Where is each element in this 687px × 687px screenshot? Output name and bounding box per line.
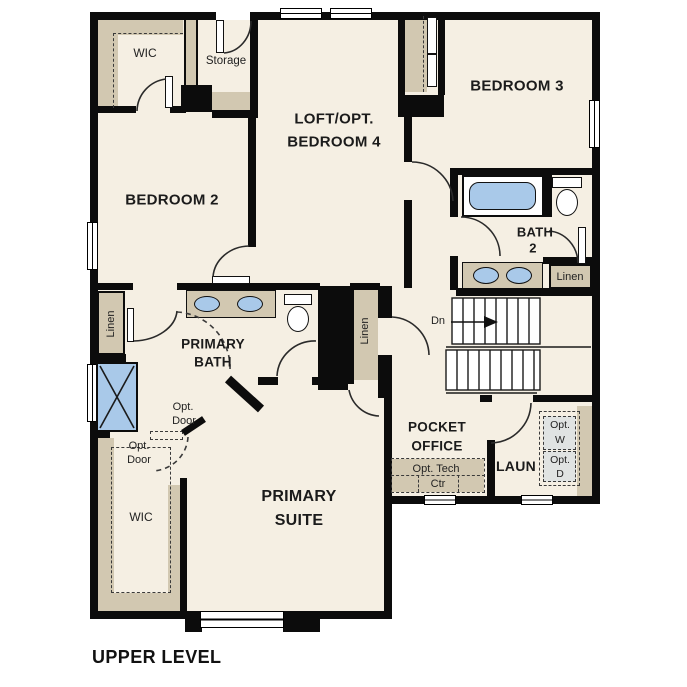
storage-door-leaf: [216, 20, 224, 53]
label-opt-tech-line1: Opt. Tech: [413, 463, 460, 475]
wic-storage-divider-closet: [184, 12, 198, 85]
wall-storage-east: [250, 12, 258, 118]
wall-loft-south-cap: [350, 283, 380, 290]
toilet-bath2-bowl: [556, 189, 578, 216]
wall-block-storage-sw: [181, 85, 212, 112]
wall-exterior-left: [90, 12, 98, 619]
upper-wic-shelf-dashed: [113, 33, 183, 108]
label-linen-hall: Linen: [105, 311, 117, 338]
label-laundry: LAUN: [496, 458, 536, 474]
wall-center-east-b: [378, 355, 392, 398]
wall-center-chase: [318, 286, 354, 384]
wall-hall-south-b: [533, 395, 592, 402]
label-storage: Storage: [206, 55, 246, 67]
wall-br3-closet-east: [438, 12, 445, 95]
sink-primary-1: [194, 296, 220, 312]
toilet-primary-tank: [284, 294, 312, 305]
label-opt-door2-line2: Door: [127, 454, 151, 466]
label-loft-line2: BEDROOM 4: [287, 134, 381, 151]
primary-bath-door-opening: [133, 283, 177, 290]
label-primary-suite-line1: PRIMARY: [261, 488, 336, 506]
label-primary-suite-line2: SUITE: [275, 512, 324, 530]
wall-br2-east: [248, 112, 256, 247]
wall-loft-east-b: [404, 200, 412, 288]
wall-center-east-a: [378, 286, 392, 318]
label-bath2-line1: BATH: [517, 225, 553, 240]
wall-bath2-north: [450, 168, 592, 175]
wall-hall-south-a: [480, 395, 492, 402]
label-opt-door1-line1: Opt.: [173, 401, 194, 413]
label-opt-d-line2: D: [556, 468, 564, 480]
label-primary-bath-line2: BATH: [194, 355, 232, 370]
wall-block-br3-closet: [398, 95, 444, 117]
label-stairs-dn: Dn: [431, 315, 445, 327]
window-pocket-office-bottom: [424, 495, 456, 505]
wall-primary-suite-right: [384, 390, 392, 619]
label-loft-line1: LOFT/OPT.: [294, 111, 373, 128]
bath2-door-leaf: [578, 227, 586, 264]
br3-closet-rod-dashed: [423, 16, 424, 92]
window-loft-top-2: [330, 8, 372, 19]
label-opt-tech-line2: Ctr: [431, 478, 446, 490]
primary-bath-door-leaf: [127, 308, 134, 342]
wall-office-laundry-divider: [487, 440, 495, 498]
opt-door-2-leaf-dashed: [150, 431, 183, 440]
label-opt-d-line1: Opt.: [550, 454, 570, 466]
toilet-bath2-tank: [552, 177, 582, 188]
label-linen-bath2: Linen: [557, 271, 584, 283]
label-pocket-office-line1: POCKET: [408, 420, 466, 435]
label-linen-center: Linen: [359, 318, 371, 345]
wall-br2-south-b: [177, 283, 320, 290]
window-bedroom3-right: [589, 100, 600, 148]
label-bedroom3: BEDROOM 3: [470, 78, 564, 95]
wall-bath2-west-b: [450, 256, 458, 290]
wall-pbath-south-b: [312, 377, 322, 385]
sink-primary-2: [237, 296, 263, 312]
br2-door-leaf: [212, 276, 250, 284]
opt-tech-ctr-dashed-mid: [391, 475, 485, 476]
wall-bay-stub-right: [283, 613, 320, 632]
br3-closet-slider-2: [427, 54, 437, 87]
toilet-primary-bowl: [287, 306, 309, 332]
bathtub: [469, 182, 536, 210]
sink-bath2-1: [473, 267, 499, 284]
label-lower-wic: WIC: [129, 510, 152, 524]
label-pocket-office-line2: OFFICE: [411, 439, 462, 454]
floor-plan-upper-level: WIC Storage LOFT/OPT. BEDROOM 4 BEDROOM …: [0, 0, 687, 687]
wall-center-south: [318, 382, 348, 390]
storage-lower-shelf: [212, 92, 250, 110]
wall-pbath-south-a: [258, 377, 278, 385]
wall-lower-wic-east: [180, 478, 187, 611]
label-bedroom2: BEDROOM 2: [125, 192, 219, 209]
wall-storage-south: [212, 110, 252, 118]
opt-tech-ctr-dashed-v1: [418, 475, 419, 492]
sink-bath2-2: [506, 267, 532, 284]
wall-loft-east-a: [404, 117, 412, 162]
label-bath2-line2: 2: [529, 241, 537, 256]
window-bedroom2-left: [87, 222, 98, 270]
wall-bath2-south: [456, 288, 592, 296]
plan-title: UPPER LEVEL: [92, 647, 221, 668]
window-primary-suite-bay: [200, 611, 284, 628]
br3-closet-slider-1: [427, 17, 437, 54]
label-opt-w-line1: Opt.: [550, 419, 570, 431]
window-loft-top-1: [280, 8, 322, 19]
label-upper-wic: WIC: [133, 46, 156, 60]
wall-bath2-tub-toilet-divider: [544, 168, 552, 217]
wall-exterior-right: [592, 12, 600, 504]
opt-tech-ctr-dashed-v2: [458, 475, 459, 492]
storage-door-opening: [216, 12, 250, 20]
window-laundry-bottom: [521, 495, 553, 505]
laundry-door-opening: [492, 395, 533, 402]
wall-br2-south-a: [90, 283, 133, 290]
label-primary-bath-line1: PRIMARY: [181, 337, 245, 352]
label-opt-w-line2: W: [555, 434, 565, 446]
wall-br3-closet-west: [398, 12, 405, 95]
lower-wic-shelf-bottom: [98, 593, 186, 611]
shower: [96, 362, 138, 432]
label-opt-door2-line1: Opt.: [129, 440, 150, 452]
label-opt-door1-line2: Door: [172, 415, 196, 427]
wall-bath2-west-a: [450, 175, 458, 217]
wall-linen-south: [98, 354, 126, 362]
